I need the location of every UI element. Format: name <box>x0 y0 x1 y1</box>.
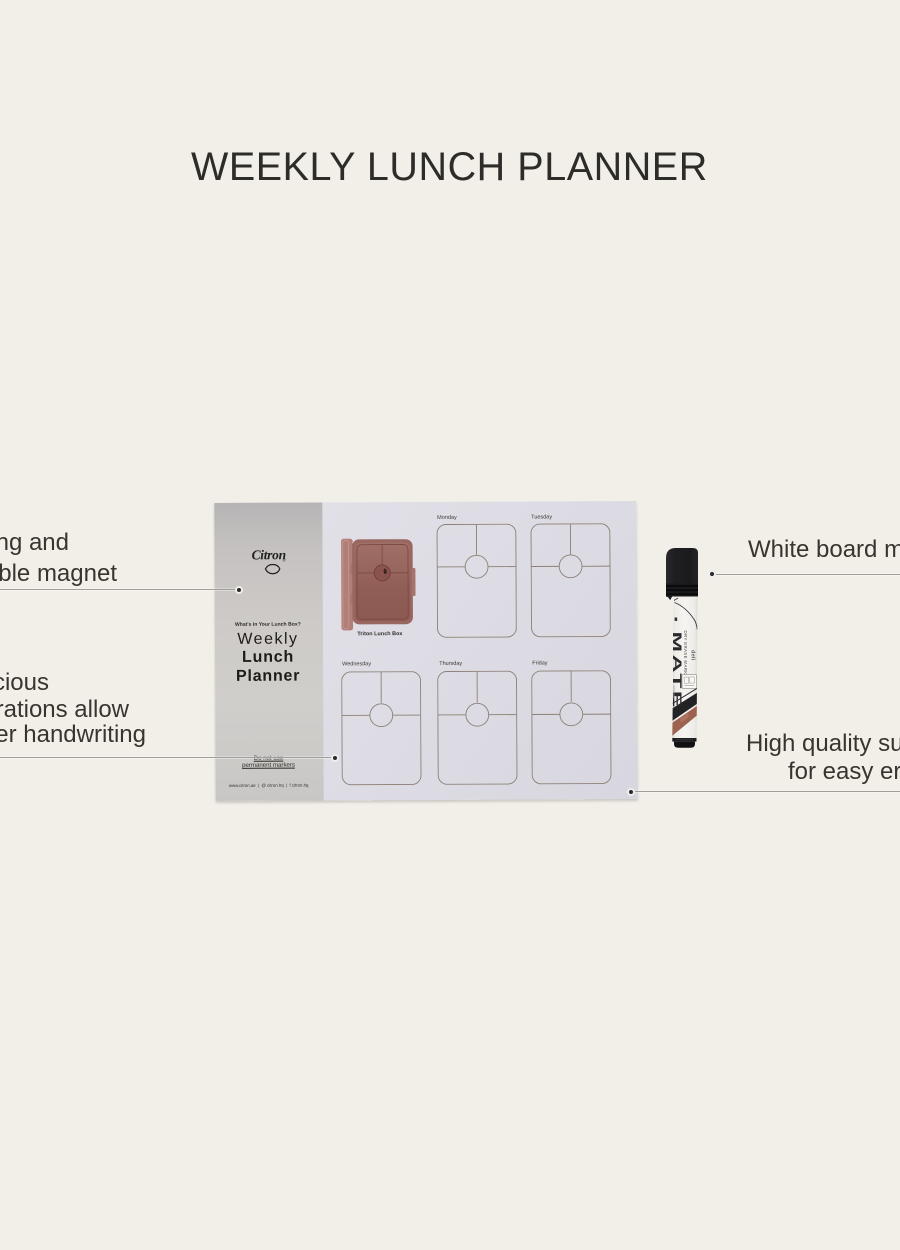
svg-text:MATE: MATE <box>670 632 683 710</box>
svg-text:Citron: Citron <box>252 547 286 562</box>
svg-text:deli: deli <box>690 650 696 661</box>
svg-text:®: ® <box>283 557 287 562</box>
svg-text:DRY ERASE MARKER: DRY ERASE MARKER <box>683 631 688 682</box>
